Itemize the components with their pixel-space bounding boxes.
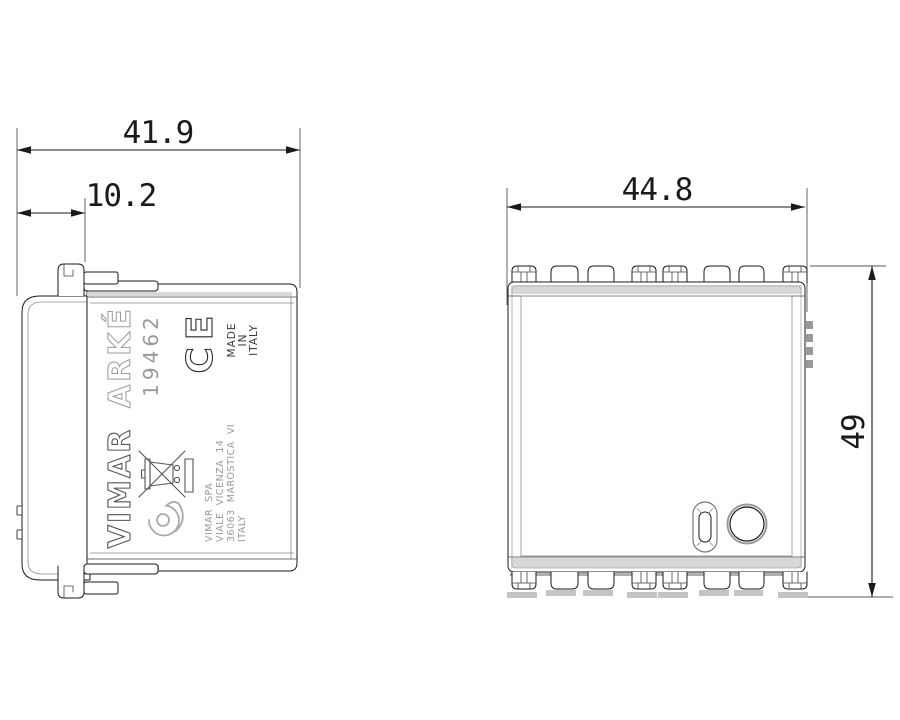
side-view: ARKÉ 19462 CE MADE IN ITALY VIMAR V	[17, 264, 297, 598]
technical-drawing: 41.9 10.2 44.8 49	[0, 0, 900, 720]
mounting-tab	[704, 572, 730, 589]
clip-tab	[632, 572, 656, 589]
dim-front-depth: 10.2	[17, 178, 156, 262]
address-line: VIMAR SPA	[204, 483, 215, 542]
side-teeth	[806, 321, 813, 368]
rear-body-notch	[17, 530, 22, 539]
top-mounting-tabs	[512, 266, 807, 283]
mounting-tab	[551, 572, 578, 589]
clip-tab	[512, 266, 536, 283]
made-in-line: ITALY	[248, 324, 260, 356]
dim-total-depth-text: 41.9	[123, 115, 194, 151]
vimar-logo-text: VIMAR	[103, 428, 138, 549]
mounting-claw-hook	[58, 566, 84, 598]
drawing-canvas: 41.9 10.2 44.8 49	[0, 0, 900, 720]
product-code-text: 19462	[139, 313, 163, 397]
rear-body	[22, 296, 90, 580]
address-line: 36063 MAROSTICA VI	[226, 424, 237, 542]
front-view	[507, 266, 813, 598]
mounting-tab	[739, 266, 764, 283]
module-body	[508, 282, 805, 572]
mounting-tab	[739, 572, 764, 589]
arrowhead	[17, 209, 31, 217]
address-line: ITALY	[237, 515, 248, 542]
ce-mark-text: CE	[180, 308, 221, 373]
arrowhead	[71, 209, 85, 217]
dim-height: 49	[806, 266, 893, 597]
clip-tab	[632, 266, 656, 283]
arrowhead	[868, 583, 876, 597]
clip-tab	[512, 572, 536, 589]
clip-tab	[663, 266, 687, 283]
mounting-claw-hook	[58, 264, 84, 296]
arrowhead	[791, 203, 805, 211]
arrowhead	[286, 146, 300, 154]
dim-height-text: 49	[836, 414, 872, 449]
mounting-tab	[588, 572, 614, 589]
mounting-tab	[551, 266, 578, 283]
plate-top-shade	[87, 292, 292, 296]
mounting-tab	[704, 266, 730, 283]
dim-width-text: 44.8	[622, 172, 693, 208]
clip-tab	[783, 266, 807, 283]
tab-shadows	[507, 590, 808, 598]
body-bottom-shade	[511, 558, 802, 568]
rear-body-notch	[17, 506, 22, 515]
mounting-claw-bar	[84, 272, 118, 284]
mounting-tab	[588, 266, 614, 283]
clip-tab	[783, 572, 807, 589]
arrowhead	[868, 266, 876, 280]
arrowhead	[507, 203, 521, 211]
plate-bottom-lip	[84, 564, 158, 574]
dim-front-depth-text: 10.2	[86, 178, 157, 214]
address-line: VIALE VICENZA 14	[215, 440, 226, 542]
arrowhead	[17, 146, 31, 154]
brand-logo-text: ARKÉ	[102, 306, 138, 408]
mounting-claw-bar	[84, 582, 118, 594]
clip-tab	[663, 572, 687, 589]
